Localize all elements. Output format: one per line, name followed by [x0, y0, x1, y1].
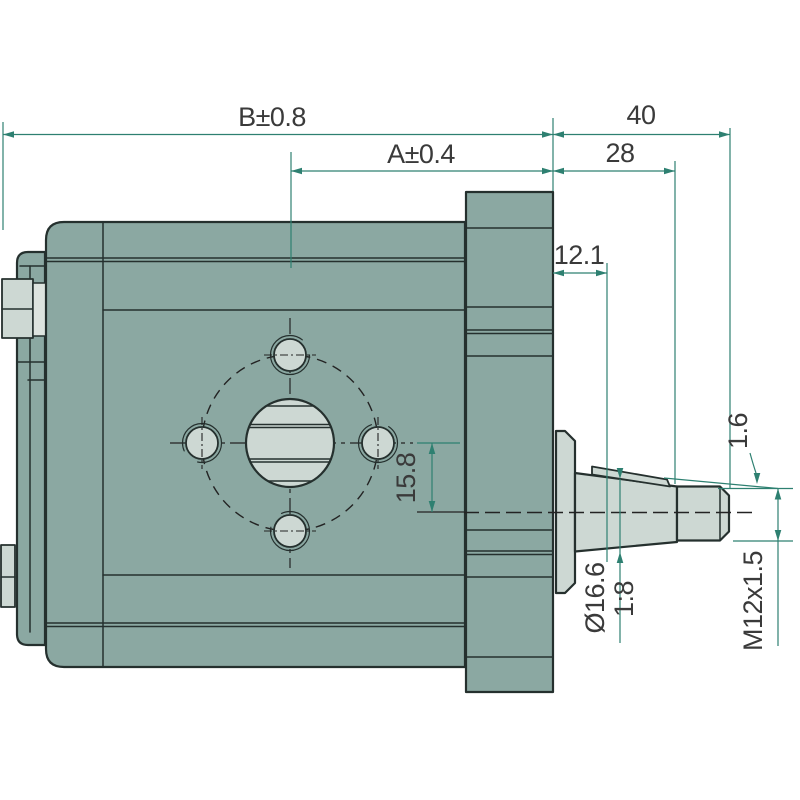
rear-cover: [1, 252, 46, 645]
dim-40-label: 40: [626, 100, 655, 130]
dim-key-protrusion-1-6: 1.6: [664, 413, 778, 489]
pump-drawing: B±0.8 40 A±0.4 28 12.1 15.8 Ø16.6 1:8 1.…: [0, 0, 800, 800]
rear-port-boss-lower: [1, 545, 15, 607]
flange-block: [466, 192, 553, 692]
dim-m12-label: M12x1.5: [738, 551, 768, 651]
center-bore: [246, 399, 334, 487]
dim-taper-1-8-label: 1:8: [609, 581, 639, 617]
dim-body-length-A: A±0.4 28: [291, 138, 675, 174]
dim-dia-16-6-label: Ø16.6: [580, 562, 610, 633]
dim-12-1-label: 12.1: [554, 240, 605, 270]
technical-drawing-canvas: B±0.8 40 A±0.4 28 12.1 15.8 Ø16.6 1:8 1.…: [0, 0, 800, 800]
dim-1-6-label: 1.6: [723, 413, 753, 449]
dim-28-label: 28: [605, 138, 634, 168]
rear-port-boss-inner: [33, 283, 46, 336]
dim-overall-length-B: B±0.8 40: [3, 100, 730, 138]
shaft-thread-end: [677, 487, 729, 541]
mounting-flange: [466, 192, 553, 692]
dim-gauge-plane-12-1: 12.1: [553, 240, 607, 276]
dim-15-8-label: 15.8: [391, 453, 421, 504]
dim-a-label: A±0.4: [387, 139, 455, 169]
dim-b-label: B±0.8: [238, 102, 306, 132]
